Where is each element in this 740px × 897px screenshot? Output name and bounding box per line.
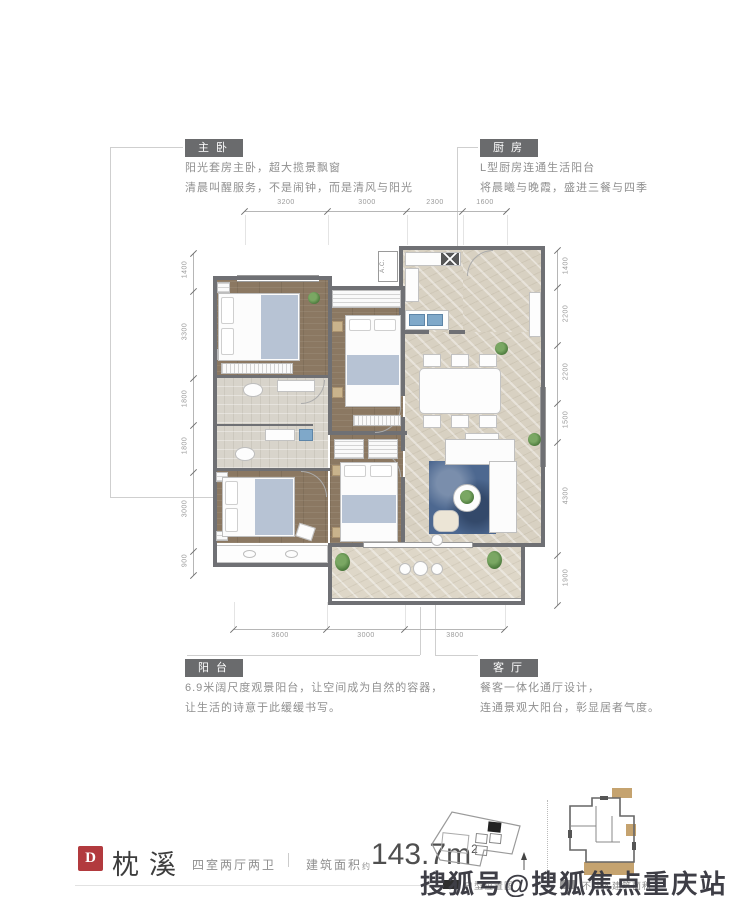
- sink-icon: [427, 314, 443, 326]
- sofa-icon: [489, 461, 517, 533]
- wall: [213, 563, 330, 567]
- stove-icon: [441, 253, 459, 265]
- wall: [449, 330, 465, 334]
- balcony-chair: [431, 563, 443, 575]
- nightstand: [217, 282, 230, 293]
- washer-icon: [299, 429, 313, 441]
- dim-chain-bottom: [234, 629, 505, 630]
- dim-chain-top: [245, 211, 507, 212]
- wall: [541, 246, 545, 545]
- wall: [328, 431, 407, 435]
- pillow: [225, 481, 238, 505]
- leader-line: [110, 147, 183, 148]
- dining-chair: [451, 354, 469, 367]
- wall: [213, 276, 217, 567]
- divider: [288, 853, 289, 867]
- callout-text: 餐客一体化通厅设计，: [480, 679, 660, 697]
- wall: [401, 435, 405, 451]
- plant-icon: [308, 292, 320, 304]
- bathroom-sink: [277, 380, 315, 392]
- wall: [521, 543, 525, 605]
- footer-divider: [75, 885, 430, 886]
- callout-tag-master-bedroom: 主卧: [185, 139, 243, 157]
- callout-master-bedroom: 主卧 阳光套房主卧，超大揽景飘窗 清晨叫醒服务，不是闹钟，而是清风与阳光: [185, 138, 413, 197]
- wall: [213, 468, 330, 471]
- leader-line: [420, 607, 421, 655]
- dim-tick: [501, 626, 508, 633]
- dim-chain-left: [193, 253, 194, 575]
- sliding-door-balcony: [363, 542, 473, 548]
- dim-value: 3800: [427, 632, 483, 639]
- plant-icon: [487, 551, 502, 569]
- dim-value: 1600: [457, 199, 513, 206]
- leader-line: [110, 497, 213, 498]
- dim-tick: [190, 572, 197, 579]
- armchair: [433, 510, 459, 532]
- wall: [399, 246, 545, 250]
- wall: [473, 543, 545, 547]
- pillow: [349, 319, 371, 331]
- dim-value: 1500: [563, 392, 570, 448]
- dim-value: 4300: [563, 468, 570, 524]
- callout-tag-living-room: 客厅: [480, 659, 538, 677]
- callout-text: 让生活的诗意于此缓缓书写。: [185, 699, 443, 717]
- callout-living-room: 客厅 餐客一体化通厅设计， 连通景观大阳台，彰显居者气度。: [480, 658, 660, 717]
- bed-throw: [342, 495, 396, 523]
- bench: [353, 415, 401, 426]
- dim-value: 2300: [407, 199, 463, 206]
- leader-line: [110, 147, 111, 497]
- wall: [399, 330, 429, 334]
- bay-window-master: [215, 545, 328, 563]
- watermark-text: 搜狐号@搜狐焦点重庆站: [420, 864, 727, 897]
- stool: [332, 387, 343, 398]
- dim-value: 1800: [182, 418, 189, 474]
- dim-value: 3300: [182, 304, 189, 360]
- kitchen-cabinet: [405, 268, 419, 302]
- dim-value: 2200: [563, 286, 570, 342]
- balcony-chair: [399, 563, 411, 575]
- callout-text: 连通景观大阳台，彰显居者气度。: [480, 699, 660, 717]
- unit-letter: D: [85, 850, 96, 867]
- dining-chair: [423, 415, 441, 428]
- leader-line: [457, 147, 478, 148]
- dim-value: 3200: [258, 199, 314, 206]
- shoe-cabinet: [529, 292, 541, 337]
- wall: [401, 477, 405, 543]
- wall: [401, 286, 405, 396]
- unit-layout: 四室两厅两卫: [192, 856, 276, 873]
- stool: [332, 321, 343, 332]
- dim-value: 3000: [338, 632, 394, 639]
- pillow: [344, 465, 366, 477]
- ac-label: A.C.: [380, 259, 386, 273]
- dim-value: 3000: [339, 199, 395, 206]
- dim-value: 1900: [563, 550, 570, 606]
- floorplan-drawing: A.C.: [213, 237, 545, 608]
- wardrobe: [368, 439, 398, 459]
- dim-tick: [554, 602, 561, 609]
- pillow: [370, 465, 392, 477]
- area-label: 建筑面积: [306, 856, 362, 873]
- wardrobe: [332, 290, 401, 308]
- wall: [328, 543, 363, 547]
- unit-letter-badge: D: [78, 846, 103, 871]
- callout-tag-balcony: 阳台: [185, 659, 243, 677]
- dim-tick: [503, 208, 510, 215]
- bay-decor: [285, 550, 298, 558]
- callout-balcony: 阳台 6.9米阔尺度观景阳台，让空间成为自然的容器， 让生活的诗意于此缓缓书写。: [185, 658, 443, 717]
- side-table: [431, 534, 443, 546]
- callout-text: 清晨叫醒服务，不是闹钟，而是清风与阳光: [185, 179, 413, 197]
- dim-value: 1400: [182, 242, 189, 298]
- wall: [213, 375, 328, 378]
- wall: [401, 417, 405, 435]
- wall: [213, 424, 313, 426]
- dining-chair: [479, 354, 497, 367]
- bed-throw: [261, 295, 298, 359]
- bed-throw: [347, 355, 399, 385]
- dining-chair: [479, 415, 497, 428]
- leader-line: [187, 655, 420, 656]
- callout-text: L型厨房连通生活阳台: [480, 159, 648, 177]
- toilet-icon: [235, 447, 255, 461]
- plant-icon: [528, 433, 541, 446]
- wall: [328, 543, 332, 605]
- dining-table: [419, 368, 501, 414]
- balcony-table: [413, 561, 428, 576]
- dim-chain-right: [557, 250, 558, 605]
- wall: [328, 601, 525, 605]
- sink-icon: [409, 314, 425, 326]
- plant-icon: [460, 490, 474, 504]
- area-approx: 约: [362, 861, 370, 872]
- wall: [213, 276, 330, 280]
- dim-value: 900: [182, 533, 189, 589]
- bathroom-counter: [265, 429, 295, 441]
- dining-chair: [451, 415, 469, 428]
- callout-text: 6.9米阔尺度观景阳台，让空间成为自然的容器，: [185, 679, 443, 697]
- pillow: [221, 297, 234, 324]
- toilet-icon: [243, 383, 263, 397]
- dim-value: 3600: [252, 632, 308, 639]
- dining-chair: [423, 354, 441, 367]
- callout-kitchen: 厨房 L型厨房连通生活阳台 将晨曦与晚霞，盛进三餐与四季: [480, 138, 648, 197]
- dim-value: 3000: [182, 481, 189, 537]
- leader-line: [435, 655, 478, 656]
- pillow: [374, 319, 396, 331]
- bay-decor: [243, 550, 256, 558]
- callout-text: 阳光套房主卧，超大揽景飘窗: [185, 159, 413, 177]
- unit-name: 枕溪: [112, 843, 186, 882]
- pillow: [221, 328, 234, 355]
- callout-tag-kitchen: 厨房: [480, 139, 538, 157]
- bed-throw: [255, 479, 293, 535]
- pillow: [225, 508, 238, 532]
- floorplan-poster: 主卧 阳光套房主卧，超大揽景飘窗 清晨叫醒服务，不是闹钟，而是清风与阳光 厨房 …: [0, 0, 740, 897]
- plant-icon: [335, 553, 350, 571]
- bench: [221, 363, 293, 374]
- callout-text: 将晨曦与晚霞，盛进三餐与四季: [480, 179, 648, 197]
- wardrobe: [334, 439, 364, 459]
